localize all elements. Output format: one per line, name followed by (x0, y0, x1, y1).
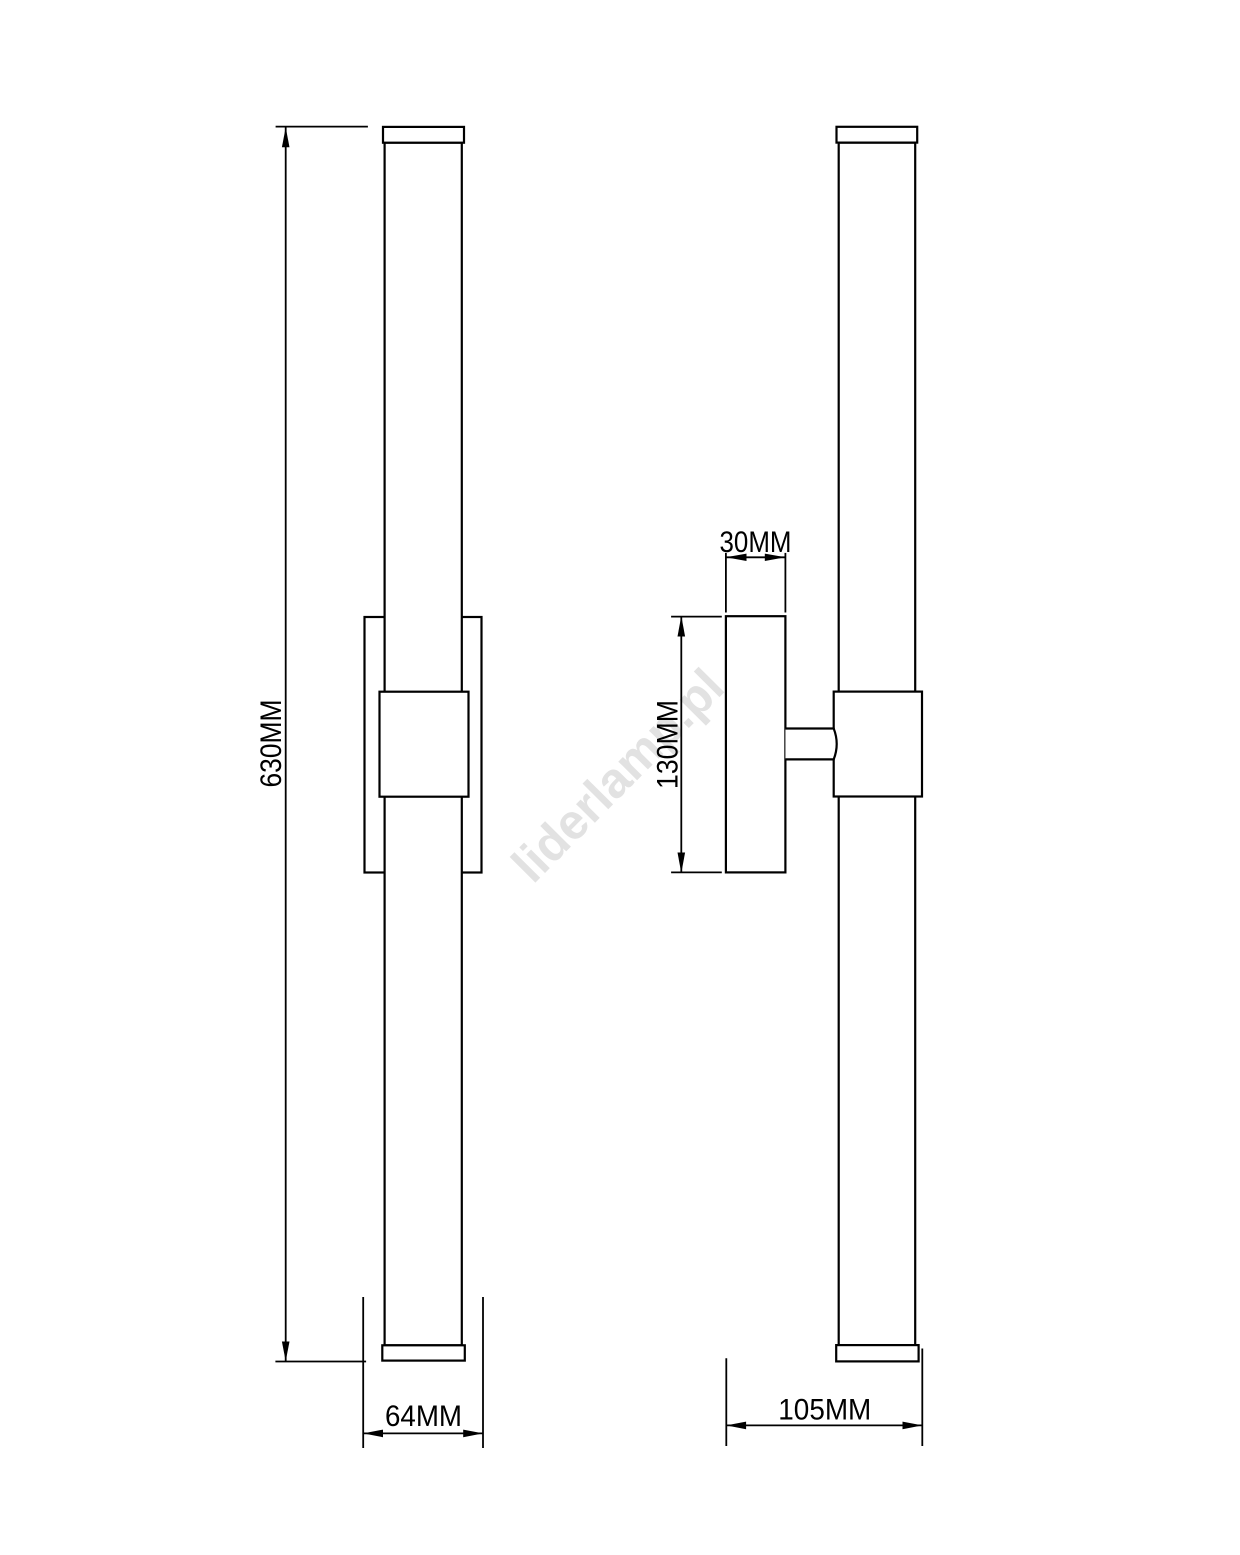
svg-text:630MM: 630MM (255, 700, 288, 788)
svg-text:130MM: 130MM (652, 700, 685, 789)
svg-text:30MM: 30MM (720, 526, 792, 559)
svg-text:105MM: 105MM (778, 1393, 871, 1426)
svg-text:64MM: 64MM (385, 1400, 462, 1433)
